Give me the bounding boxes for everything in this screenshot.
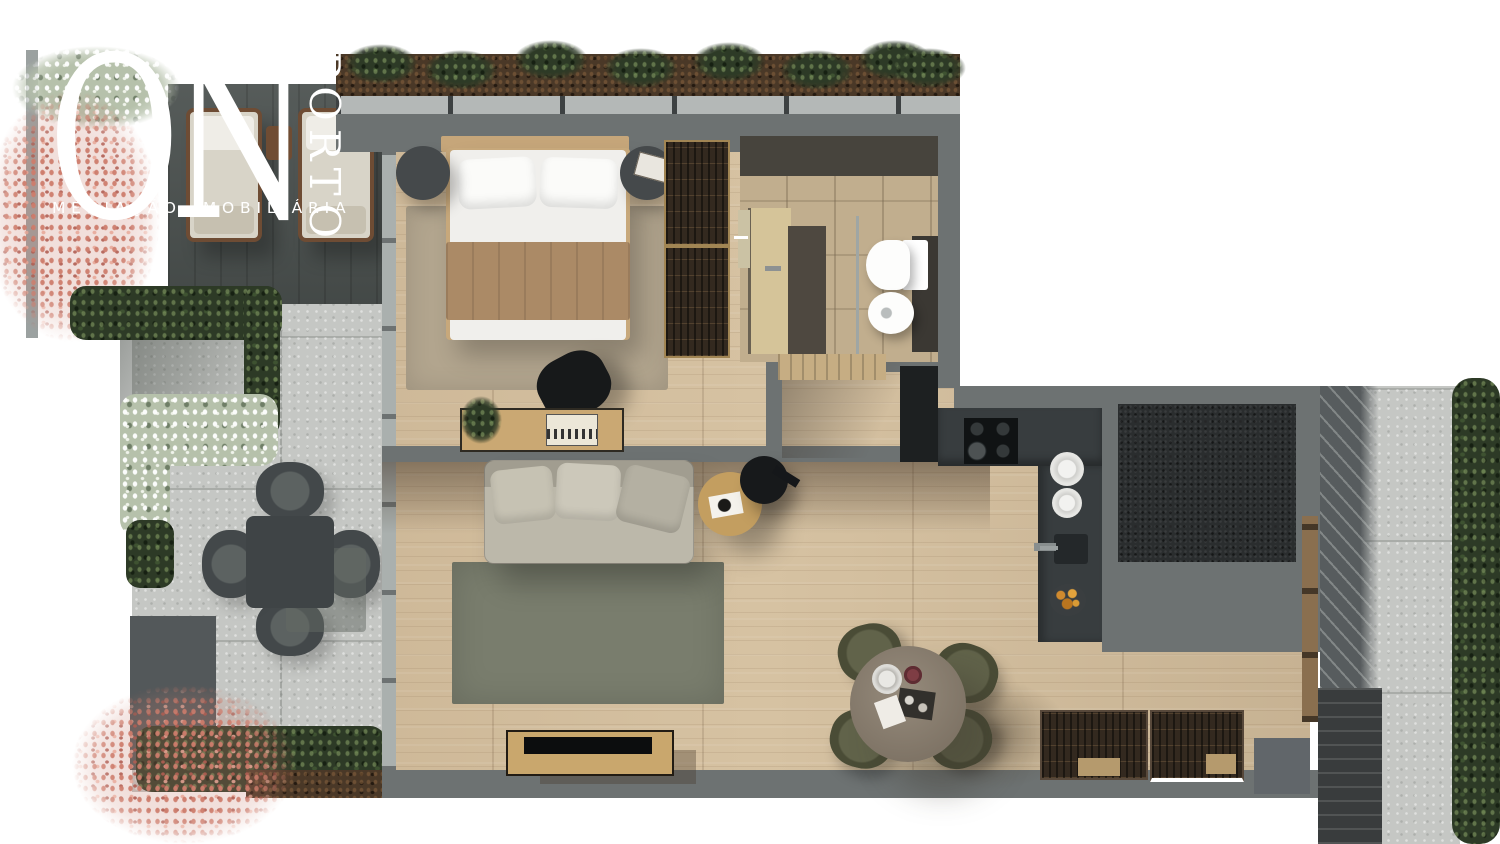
pink-bush-bottom (72, 684, 296, 844)
bedroom-wardrobe (664, 140, 730, 358)
living-room-rug (452, 562, 724, 704)
shower-glass-partition (856, 216, 859, 360)
sofa-pillow-left (489, 465, 556, 525)
hedge-right (1452, 378, 1500, 844)
hall-closet-left (1040, 710, 1148, 780)
dining-plate (872, 664, 902, 694)
grass-clump (604, 48, 678, 88)
floor-lamp (740, 456, 788, 504)
kitchen-tall-unit (900, 366, 938, 462)
bed-pillow-left (457, 156, 538, 210)
brand-tagline: MEDIAÇÃO IMOBILIÁRIA (52, 199, 351, 217)
roof-planter-grass-row (336, 34, 960, 88)
grass-clump (424, 50, 498, 90)
grass-clump (692, 42, 766, 82)
sofa-pillow-middle (555, 462, 622, 521)
grass-clump (780, 50, 854, 90)
cooktop (964, 418, 1018, 464)
bed-blanket (446, 242, 630, 320)
dark-ground-bottom-right (1318, 688, 1382, 844)
desk-plant (460, 396, 502, 444)
kitchen-plate-large (1050, 452, 1084, 486)
gray-floor-box (1254, 738, 1310, 794)
bed-pillow-right (539, 157, 619, 210)
outdoor-dining-table (246, 516, 334, 608)
shower-zone (740, 136, 938, 176)
brand-wordmark: ON (48, 28, 301, 252)
hall-closet-right (1150, 710, 1244, 782)
kitchen-sink (1054, 534, 1088, 564)
bathroom-door (738, 210, 750, 268)
nightstand-left (396, 146, 450, 200)
outdoor-chair-north (256, 462, 324, 520)
grass-clump (514, 40, 588, 80)
typewriter (546, 414, 598, 446)
hall-threshold (778, 354, 886, 380)
grass-clump (892, 48, 966, 88)
floor-plan-scene: ON PORTO MEDIAÇÃO IMOBILIÁRIA (0, 0, 1500, 844)
dining-cup (904, 666, 922, 684)
east-glass-door (1302, 516, 1318, 722)
bidet (868, 292, 914, 334)
bathroom-storage-column (788, 226, 826, 354)
toilet (866, 240, 910, 290)
tv (524, 737, 652, 754)
exterior-white-notch (958, 0, 1500, 388)
grass-clump (344, 44, 418, 84)
bathroom-vanity (748, 208, 791, 354)
utility-dark-area (1118, 404, 1296, 562)
hedge-planter-tail (126, 520, 174, 588)
fruit-bowl (1050, 584, 1086, 616)
kitchen-plate-small (1052, 488, 1082, 518)
flower-planter-vertical (120, 394, 170, 536)
